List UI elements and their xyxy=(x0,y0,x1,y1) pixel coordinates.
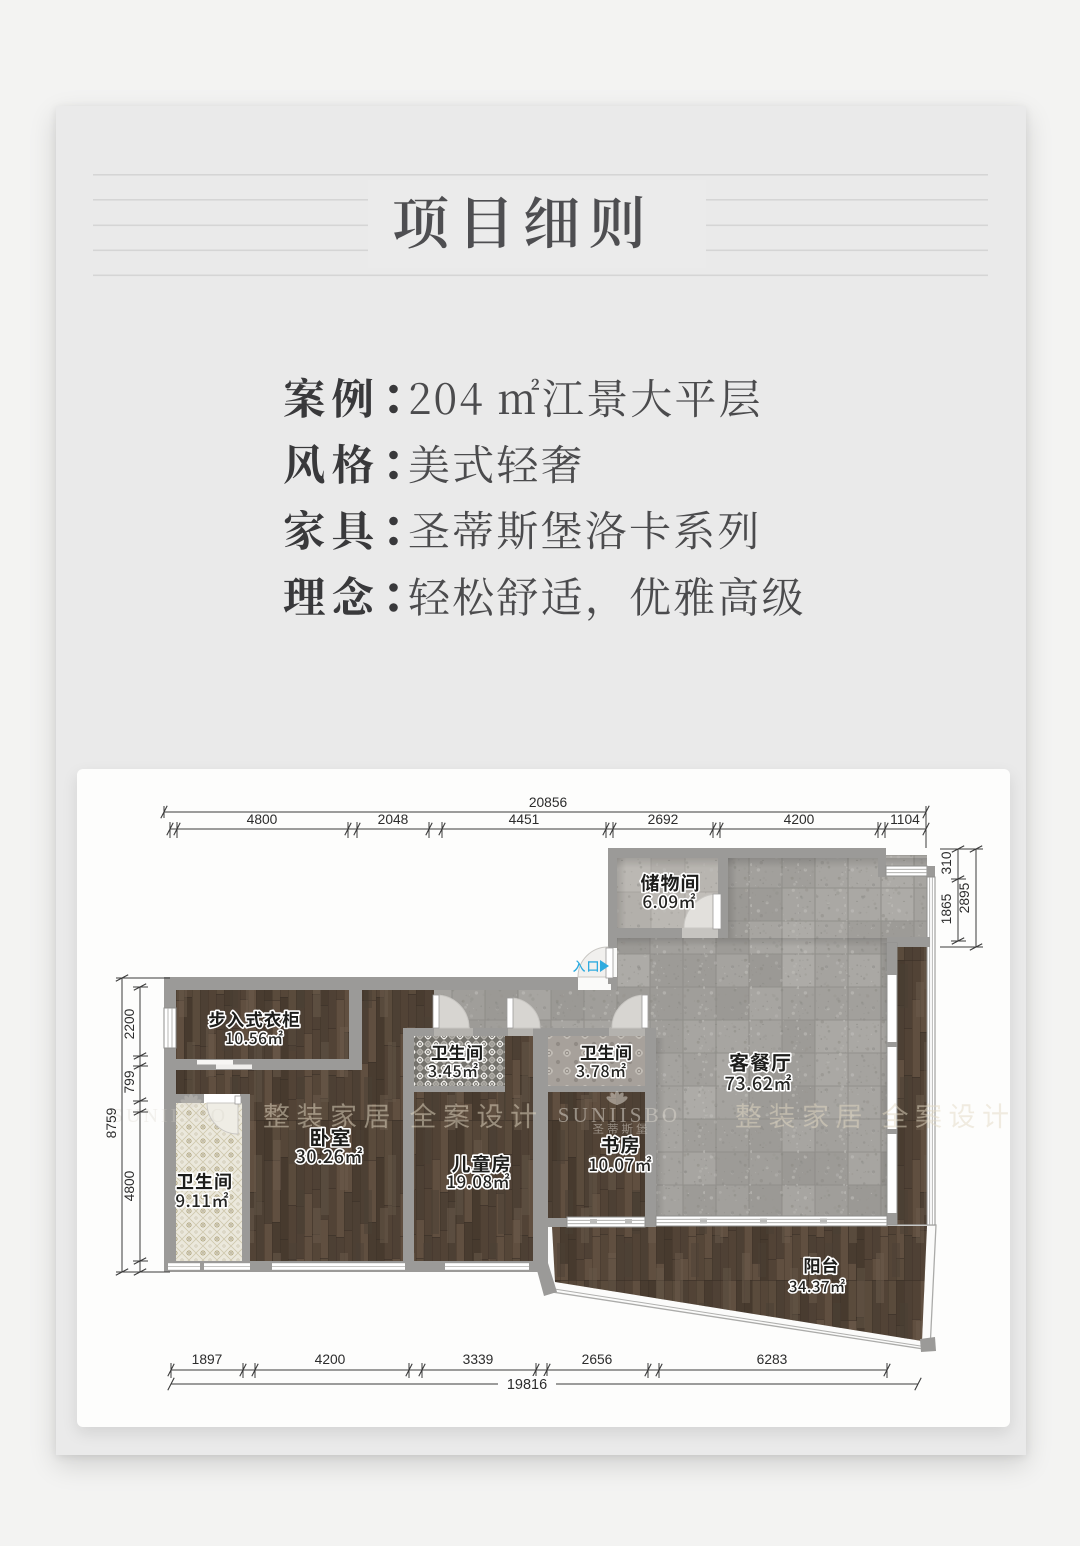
svg-text:4800: 4800 xyxy=(122,1170,137,1201)
svg-text:19816: 19816 xyxy=(507,1377,547,1393)
svg-text:SUNIISBO: SUNIISBO xyxy=(112,1105,228,1127)
svg-text:4451: 4451 xyxy=(509,812,540,827)
svg-text:4200: 4200 xyxy=(315,1352,346,1367)
svg-text:1865: 1865 xyxy=(939,893,954,924)
svg-text:2656: 2656 xyxy=(582,1352,613,1367)
svg-text:20856: 20856 xyxy=(529,795,568,810)
svg-text:2048: 2048 xyxy=(378,812,409,827)
svg-text:1897: 1897 xyxy=(192,1352,223,1367)
svg-text:2692: 2692 xyxy=(648,812,679,827)
svg-text:8759: 8759 xyxy=(104,1107,119,1138)
svg-text:2895: 2895 xyxy=(957,882,972,913)
svg-text:310: 310 xyxy=(939,851,954,874)
svg-text:3339: 3339 xyxy=(463,1352,494,1367)
svg-text:4200: 4200 xyxy=(784,812,815,827)
svg-text:4800: 4800 xyxy=(247,812,278,827)
svg-text:6283: 6283 xyxy=(757,1352,788,1367)
svg-text:2200: 2200 xyxy=(122,1008,137,1039)
svg-text:1104: 1104 xyxy=(890,812,920,827)
svg-text:SUNIISBO: SUNIISBO xyxy=(558,1103,680,1127)
svg-text:799: 799 xyxy=(122,1070,137,1093)
